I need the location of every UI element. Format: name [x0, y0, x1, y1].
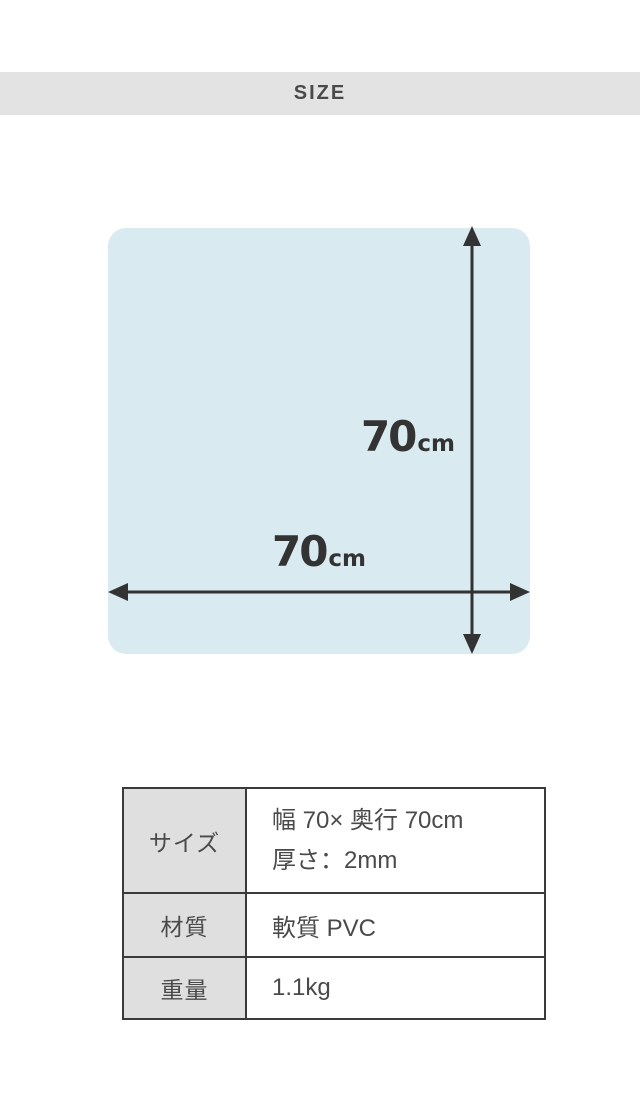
size-section-header: SIZE: [0, 72, 640, 115]
page: SIZE 70cm 70cm サイズ 幅 70× 奥行 70cm 厚さ：2mm …: [0, 0, 640, 1118]
spec-table: サイズ 幅 70× 奥行 70cm 厚さ：2mm 材質 軟質 PVC 重量 1.…: [122, 787, 546, 1020]
table-row-weight: 重量 1.1kg: [123, 957, 545, 1019]
width-value: 70: [272, 527, 326, 576]
table-row-size: サイズ 幅 70× 奥行 70cm 厚さ：2mm: [123, 788, 545, 893]
width-dimension-label: 70cm: [108, 531, 530, 573]
height-value: 70: [361, 412, 415, 461]
spec-label-weight: 重量: [123, 957, 246, 1019]
height-unit: cm: [417, 431, 455, 457]
width-arrow-icon: [108, 583, 530, 601]
spec-value-weight: 1.1kg: [246, 957, 545, 1019]
spec-value-size-line2: 厚さ：2mm: [272, 841, 543, 881]
height-arrow-icon: [463, 226, 481, 654]
spec-label-size: サイズ: [123, 788, 246, 893]
height-dimension-label: 70cm: [300, 416, 455, 458]
table-row-material: 材質 軟質 PVC: [123, 893, 545, 957]
spec-value-material: 軟質 PVC: [246, 893, 545, 957]
spec-value-weight-line1: 1.1kg: [272, 974, 543, 1002]
spec-value-size-line1: 幅 70× 奥行 70cm: [272, 801, 543, 841]
spec-value-size: 幅 70× 奥行 70cm 厚さ：2mm: [246, 788, 545, 893]
width-unit: cm: [328, 546, 366, 572]
size-section-title: SIZE: [294, 82, 346, 105]
spec-value-material-line1: 軟質 PVC: [272, 908, 543, 943]
spec-label-material: 材質: [123, 893, 246, 957]
